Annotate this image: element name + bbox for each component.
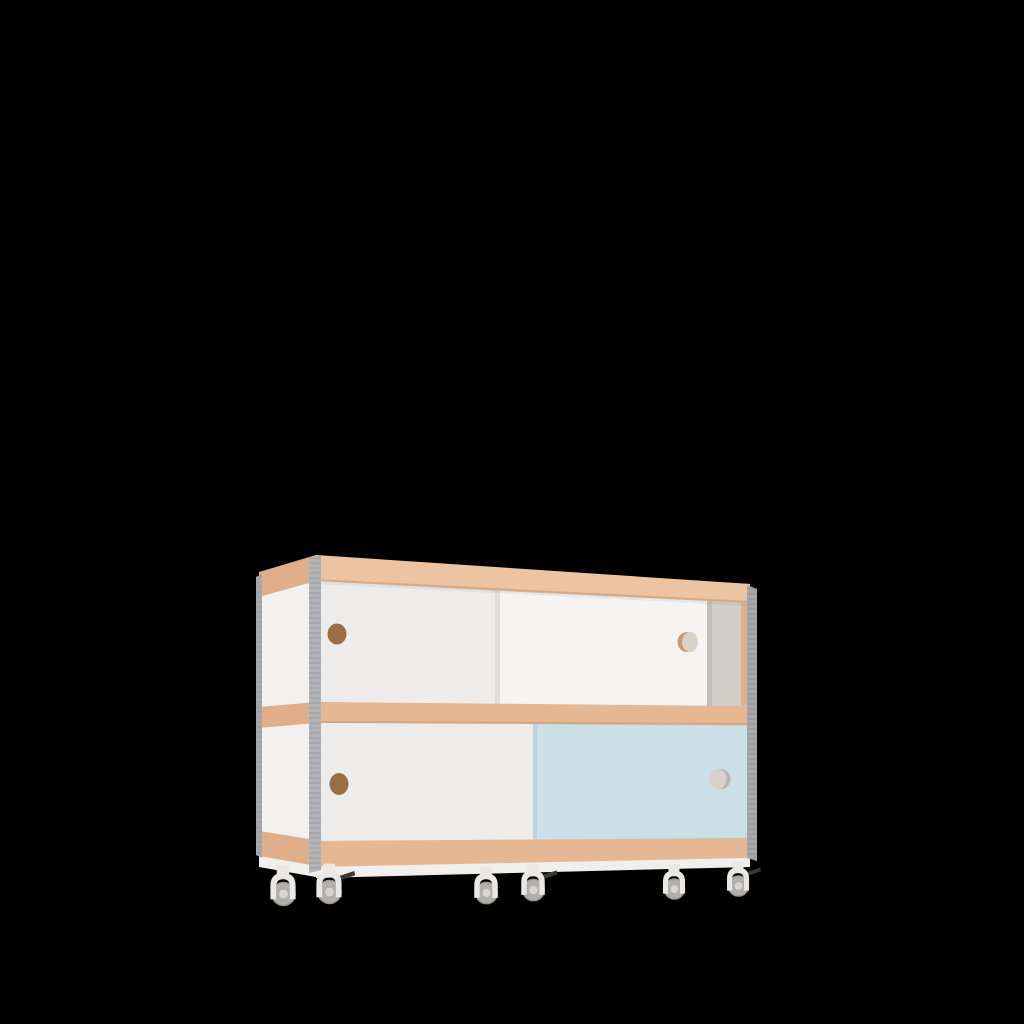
upper-door-seam-shadow [495, 591, 500, 704]
caster-wheel-hub [325, 888, 334, 897]
product-render [0, 0, 1024, 1024]
caster-wheel-hub [735, 882, 743, 890]
caster-wheel-hub [529, 886, 537, 894]
lower-door-seam-shadow [533, 724, 537, 840]
caster-wheel-hub [279, 890, 288, 899]
side-panel [256, 555, 316, 877]
door-top-right [500, 591, 707, 706]
finger-hole-bottom-left [330, 773, 349, 795]
caster-wheel-hub [482, 889, 490, 897]
interior-wood-sliver [741, 603, 748, 706]
door-bottom-left [316, 723, 533, 841]
gap-shadow [707, 601, 712, 706]
render-canvas [0, 0, 1024, 1024]
front-face [309, 555, 757, 878]
caster [663, 864, 685, 899]
finger-hole-top-right [682, 632, 698, 652]
finger-hole-blue-door [710, 769, 727, 789]
caster-wheel-hub [671, 885, 679, 893]
finger-hole-top-left [328, 624, 347, 645]
door-top-left [316, 581, 500, 704]
